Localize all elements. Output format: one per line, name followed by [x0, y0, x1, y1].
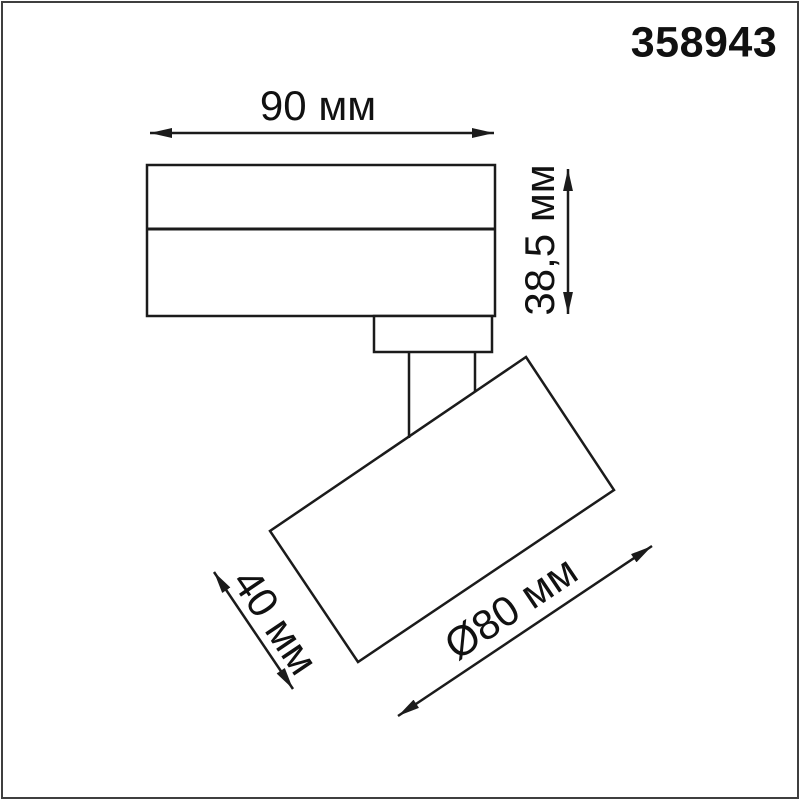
dim-width-label: 90 мм [260, 85, 376, 127]
lamp-head [270, 357, 614, 662]
track-adapter [374, 316, 492, 352]
dimension-drawing-page: 358943 90 мм 38,5 мм 40 мм Ø80 мм [0, 0, 800, 800]
spotlight-dimension-diagram [0, 0, 800, 800]
track-mount-body [147, 165, 495, 316]
dim-height-label: 38,5 мм [519, 164, 561, 315]
